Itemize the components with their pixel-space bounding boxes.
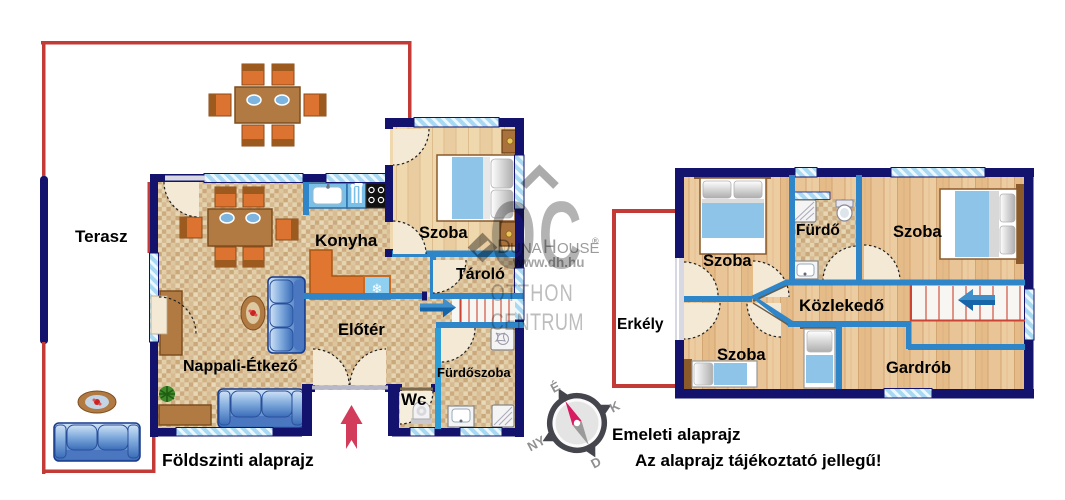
svg-text:Erkély: Erkély <box>617 316 664 333</box>
svg-text:Szoba: Szoba <box>893 223 942 241</box>
svg-text:Szoba: Szoba <box>703 252 752 270</box>
svg-text:Terasz: Terasz <box>75 227 128 246</box>
svg-text:OTTHON: OTTHON <box>491 278 574 306</box>
svg-text:CENTRUM: CENTRUM <box>491 307 584 335</box>
svg-text:Konyha: Konyha <box>315 231 378 250</box>
svg-text:Szoba: Szoba <box>419 224 468 242</box>
svg-text:Nappali-Étkező: Nappali-Étkező <box>183 356 298 375</box>
svg-text:®: ® <box>592 236 599 246</box>
svg-text:www.dh.hu: www.dh.hu <box>512 255 585 270</box>
svg-text:Előtér: Előtér <box>338 321 385 339</box>
svg-text:Az alaprajz tájékoztató jelleg: Az alaprajz tájékoztató jellegű! <box>635 451 882 470</box>
svg-text:OC: OC <box>490 181 584 288</box>
svg-text:Emeleti alaprajz: Emeleti alaprajz <box>612 425 741 444</box>
svg-text:Földszinti alaprajz: Földszinti alaprajz <box>162 450 314 470</box>
svg-text:Közlekedő: Közlekedő <box>799 296 884 315</box>
svg-text:Fürdő: Fürdő <box>796 222 840 239</box>
svg-text:Szoba: Szoba <box>717 346 766 364</box>
svg-text:Wc: Wc <box>401 390 427 409</box>
svg-text:Gardrób: Gardrób <box>886 359 951 377</box>
svg-text:D: D <box>497 237 511 258</box>
svg-text:Fürdőszoba: Fürdőszoba <box>437 365 511 380</box>
